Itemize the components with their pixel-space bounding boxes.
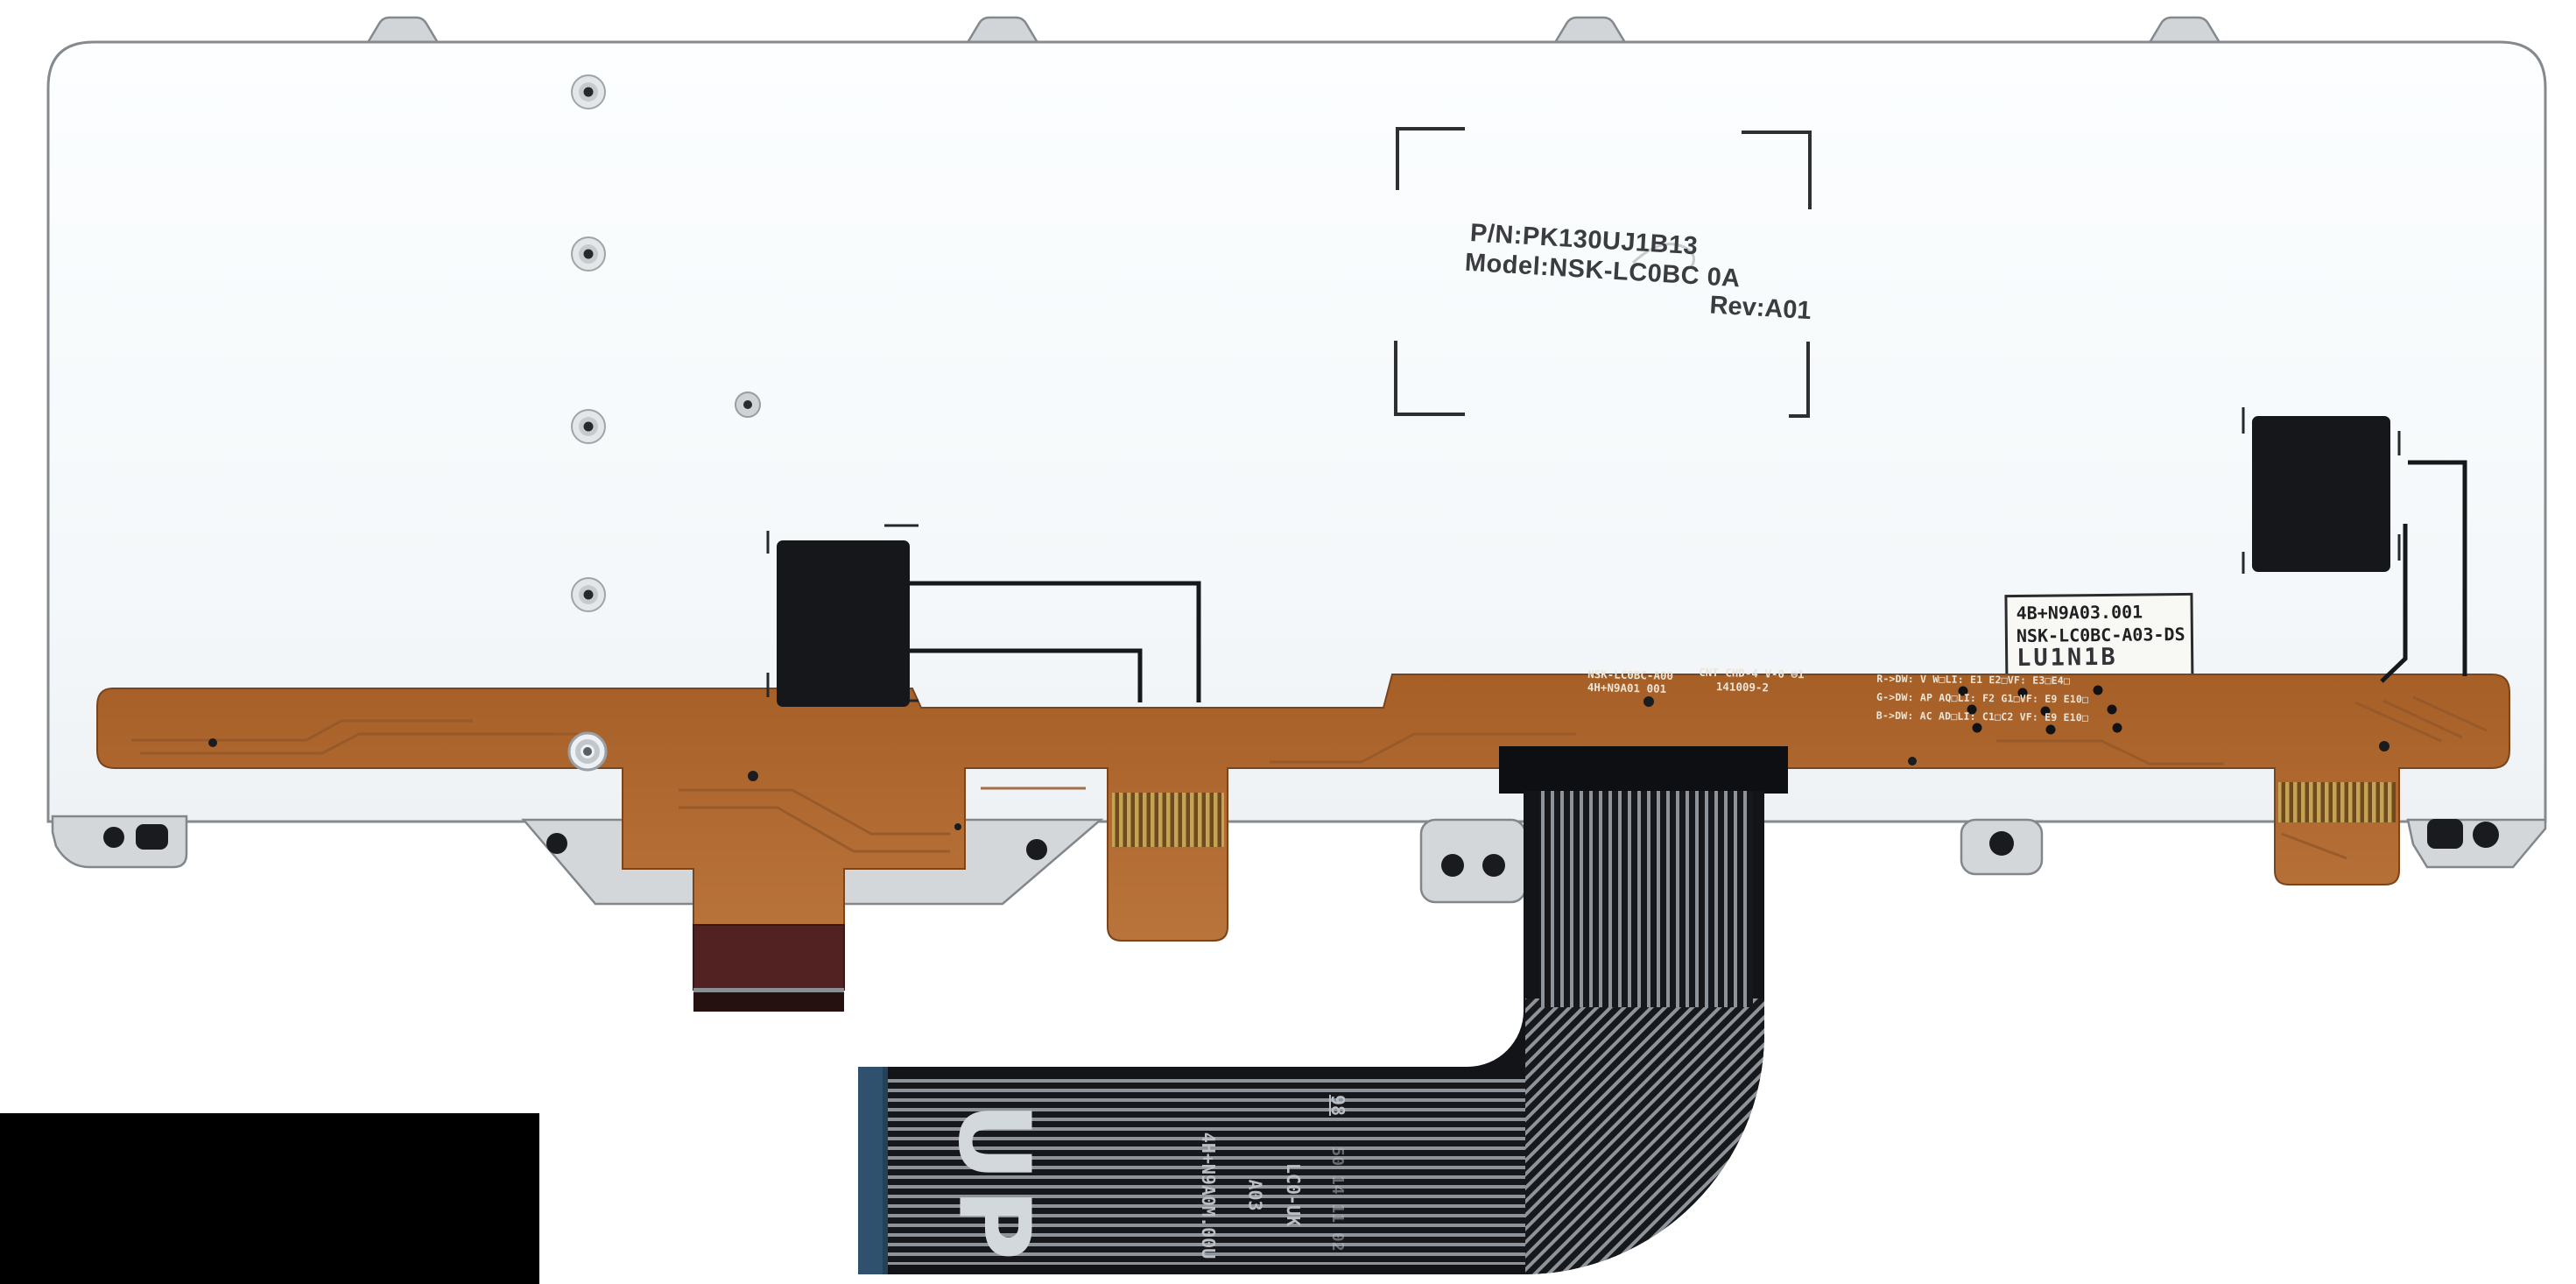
backlight-flex-circuit: [97, 674, 2509, 941]
flex-eyelet: [569, 733, 606, 770]
backlight-pad-right: [2252, 416, 2390, 572]
backlight-pad-left: [777, 540, 910, 707]
gold-fingers-right: [2278, 782, 2396, 822]
connector-edge-highlight: [693, 988, 844, 992]
ribbon-attachment-band: [1499, 746, 1788, 794]
connector-stiffener: [693, 925, 844, 990]
pad-wire-traces: [910, 462, 2465, 702]
blue-stiffener-shade: [883, 1067, 888, 1274]
connector-tip: [693, 992, 844, 1012]
pad-corner-marks: [768, 407, 2399, 701]
flex-and-cable-layer: [0, 0, 2576, 1284]
ribbon-conductors: [886, 791, 1764, 1274]
photo-stage: P/N:PK130UJ1B13 Model:NSK-LC0BC 0A Rev:A…: [0, 0, 2576, 1284]
censor-box: [0, 1113, 539, 1284]
gold-fingers-middle: [1112, 793, 1224, 847]
